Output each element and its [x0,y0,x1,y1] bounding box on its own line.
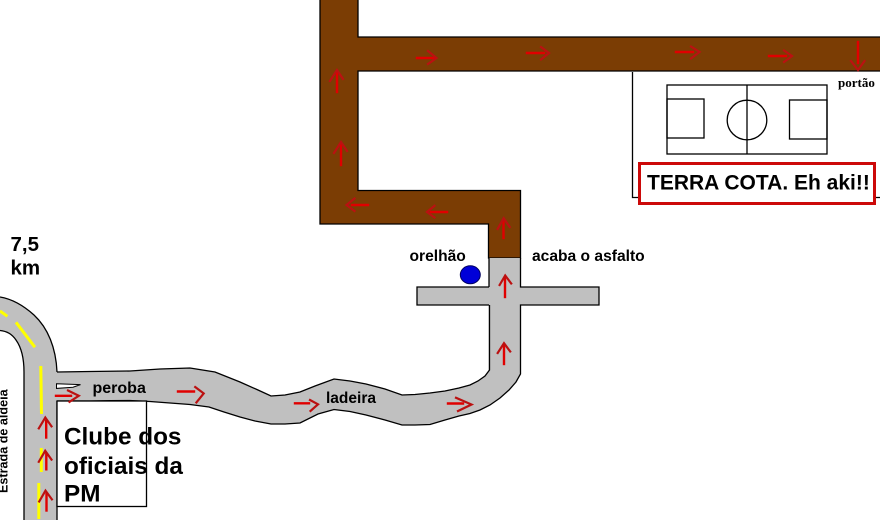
svg-text:km: km [11,257,41,280]
svg-text:peroba: peroba [93,380,146,397]
svg-text:Clube dos: Clube dos [64,424,181,451]
svg-text:ladeira: ladeira [326,390,376,407]
svg-text:oficiais da: oficiais da [64,453,183,480]
svg-text:Estrada de aldeia: Estrada de aldeia [0,388,10,493]
svg-text:portão: portão [838,75,875,90]
svg-text:acaba o asfalto: acaba o asfalto [532,248,645,265]
svg-text:TERRA COTA. Eh aki!!: TERRA COTA. Eh aki!! [647,172,870,195]
svg-text:7,5: 7,5 [11,233,40,256]
svg-text:PM: PM [64,481,100,508]
svg-text:orelhão: orelhão [410,248,466,265]
